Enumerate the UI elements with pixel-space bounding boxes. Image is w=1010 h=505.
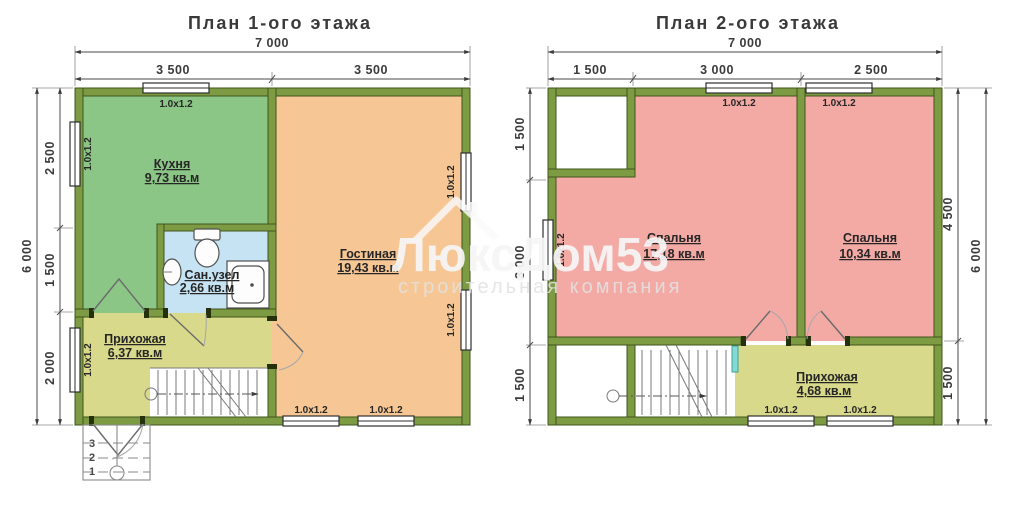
window	[748, 416, 814, 426]
room-name: Прихожая	[104, 332, 166, 346]
dim-label: 2 500	[854, 63, 888, 77]
room-bedroom2	[805, 92, 938, 341]
dim-label: 3 000	[513, 245, 527, 279]
window	[706, 83, 772, 93]
plan1-drawing: 1.0x1.2 1.0x1.2 1.0x1.2 1.0x1.2 1.0x1.2 …	[20, 36, 471, 480]
dim-label: 4 500	[941, 197, 955, 231]
room-name: Спальня	[647, 231, 701, 245]
dim-label: 1 500	[573, 63, 607, 77]
window-size-label: 1.0x1.2	[446, 165, 457, 199]
dim-label: 6 000	[20, 239, 34, 273]
dim-label: 1 500	[43, 253, 57, 287]
staircase-2f	[607, 345, 726, 417]
window	[358, 416, 414, 426]
porch-step-number: 3	[89, 438, 95, 450]
sink-fixture	[163, 259, 181, 285]
porch-steps: 3 2 1	[83, 425, 150, 480]
window-size-label: 1.0x1.2	[83, 343, 94, 377]
room-area: 17,18 кв.м	[643, 247, 704, 261]
dim-label: 1 500	[513, 117, 527, 151]
window-size-label: 1.0x1.2	[159, 99, 193, 110]
dim-label: 7 000	[728, 36, 762, 50]
room-area: 2,66 кв.м	[180, 281, 234, 295]
window	[461, 290, 471, 350]
dim-label: 1 500	[513, 368, 527, 402]
window-size-label: 1.0x1.2	[369, 405, 403, 416]
floor-plan-sheet: План 1-ого этажа План 2-ого этажа	[0, 0, 1010, 505]
dim-label: 2 000	[43, 351, 57, 385]
window	[806, 83, 872, 93]
room-area: 4,68 кв.м	[797, 384, 851, 398]
plan1-title: План 1-ого этажа	[188, 13, 372, 34]
window-size-label: 1.0x1.2	[722, 98, 756, 109]
window-size-label: 1.0x1.2	[764, 405, 798, 416]
plans-drawing: 1.0x1.2 1.0x1.2 1.0x1.2 1.0x1.2 1.0x1.2 …	[0, 0, 1010, 505]
dim-label: 3 000	[700, 63, 734, 77]
dim-label: 3 500	[354, 63, 388, 77]
void-area	[552, 92, 631, 173]
room-area: 10,34 кв.м	[839, 247, 900, 261]
room-name: Сан.узел	[185, 268, 240, 282]
plan2-title: План 2-ого этажа	[656, 13, 840, 34]
window-size-label: 1.0x1.2	[822, 98, 856, 109]
room-area: 6,37 кв.м	[108, 346, 162, 360]
window-size-label: 1.0x1.2	[294, 405, 328, 416]
window-size-label: 1.0x1.2	[556, 233, 567, 267]
room-name: Кухня	[154, 157, 191, 171]
porch-step-number: 1	[89, 466, 95, 478]
dim-label: 2 500	[43, 141, 57, 175]
stair-railing	[732, 346, 738, 372]
room-name: Прихожая	[796, 370, 858, 384]
window	[827, 416, 893, 426]
room-area: 19,43 кв.м	[337, 261, 398, 275]
room-name: Гостиная	[340, 247, 397, 261]
plan2-drawing: 1.0x1.2 1.0x1.2 1.0x1.2 1.0x1.2 1.0x1.2 …	[513, 36, 992, 426]
dim-label: 1 500	[941, 366, 955, 400]
window	[543, 220, 553, 280]
window	[70, 122, 80, 186]
stairwell-1f	[150, 368, 268, 417]
porch-step-number: 2	[89, 452, 95, 464]
dim-label: 3 500	[156, 63, 190, 77]
room-area: 9,73 кв.м	[145, 171, 199, 185]
room-name: Спальня	[843, 231, 897, 245]
window-size-label: 1.0x1.2	[83, 137, 94, 171]
window	[461, 153, 471, 211]
toilet-fixture	[194, 229, 220, 267]
window-size-label: 1.0x1.2	[843, 405, 877, 416]
window	[283, 416, 339, 426]
door-entrance	[93, 424, 143, 459]
window	[143, 83, 209, 93]
window-size-label: 1.0x1.2	[446, 303, 457, 337]
dim-label: 6 000	[969, 239, 983, 273]
window	[70, 328, 80, 392]
dim-label: 7 000	[255, 36, 289, 50]
